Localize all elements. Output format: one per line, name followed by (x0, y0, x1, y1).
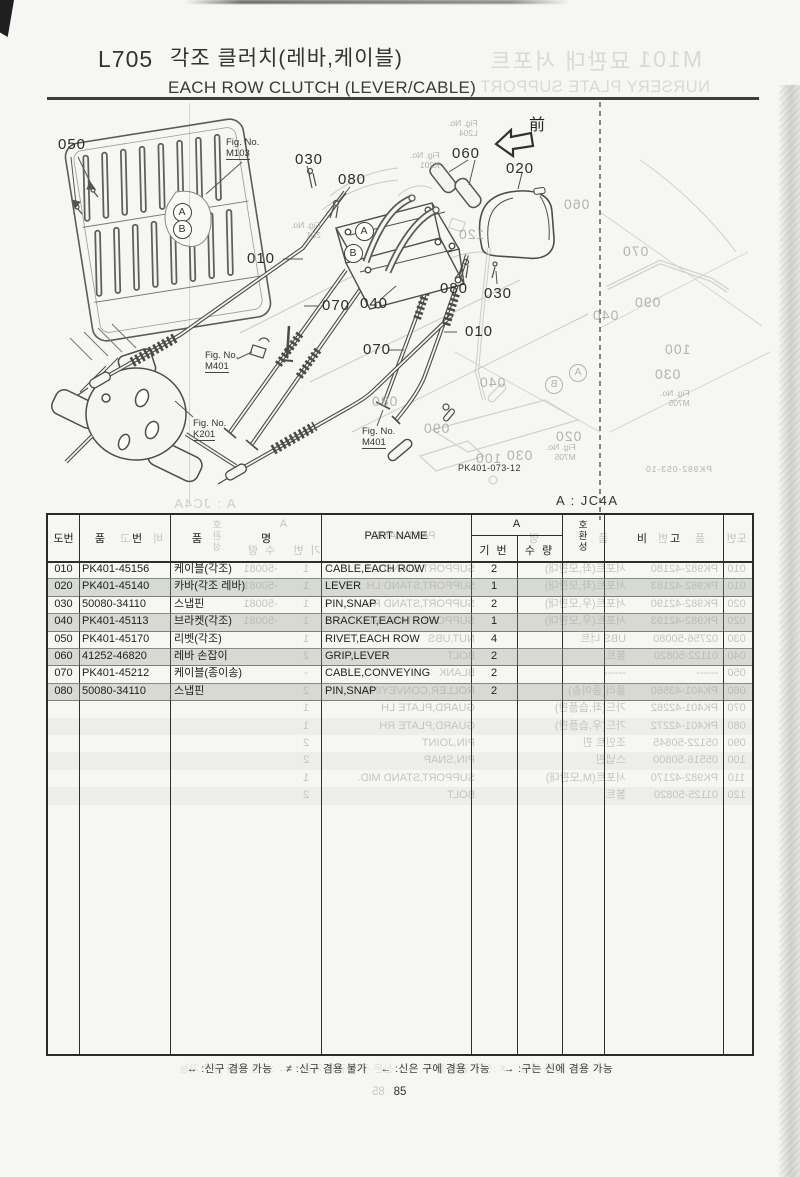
fold-line-right (599, 102, 601, 520)
col-header-qty: 수 량 (517, 542, 562, 558)
gearbox (49, 347, 236, 484)
bleedthrough-lines (420, 160, 770, 484)
col-header-fig-no: 도번 (48, 530, 79, 546)
catalog-page: M101 묘판대 서포트 NURSERY PLATE SUPPORT L705 … (0, 0, 800, 1177)
col-header-group-a: A (471, 518, 562, 530)
table-row: 03050080-34110스냅핀PIN,SNAP2 (48, 596, 752, 613)
compat-legend: ↔ :신구 겸용 가능 ≠ :신구 겸용 불가 ← :신은 구에 겸용 가능 →… (0, 1061, 800, 1076)
ghost-title-english: NURSERY PLATE SUPPORT (480, 78, 710, 97)
page-number: 85 (0, 1086, 800, 1098)
ghost-applicability-note: A : JC4A (173, 496, 236, 511)
col-header-part-name: PART NAME (321, 530, 471, 542)
table-row: 070PK401-45212케이블(종이송)CABLE,CONVEYING2 (48, 665, 752, 682)
small-pin (443, 404, 456, 422)
col-header-part-no: 품 번 (79, 530, 170, 546)
section-code: L705 (98, 46, 153, 73)
col-header-serial: 기 번 (471, 542, 517, 558)
diagram-line-art (0, 100, 800, 512)
table-row: 050PK401-45170리벳(각조)RIVET,EACH ROW4 (48, 631, 752, 648)
table-row: 010PK401-45156케이블(각조)CABLE,EACH ROW2 (48, 561, 752, 578)
table-row: 06041252-46820레바 손잡이GRIP,LEVER2 (48, 648, 752, 665)
table-row: 08050080-34110스냅핀PIN,SNAP2 (48, 683, 752, 700)
applicability-note: A : JC4A (556, 493, 619, 508)
clamp-part (250, 338, 269, 358)
table-row-line (48, 700, 752, 701)
fold-line-left (189, 103, 190, 503)
ghost-section-code: M101 (636, 46, 702, 73)
group-a-divider (471, 535, 562, 536)
page-title-english: EACH ROW CLUTCH (LEVER/CABLE) (168, 78, 476, 98)
front-arrow (496, 130, 533, 156)
col-header-compat: 호 환 성 (562, 520, 604, 553)
rivet-pin (386, 438, 413, 463)
col-header-name-kr: 품 명 (170, 530, 321, 546)
col-header-remarks: 비 고 (604, 530, 723, 546)
parts-diagram (0, 100, 800, 512)
ghost-title-korean: 묘판대 서포트 (488, 44, 630, 76)
page-title-korean: 각조 클러치(레바,케이블) (170, 42, 403, 72)
lever-cover (480, 187, 555, 258)
parts-table: 도번품 번품 명PART NAMEA기 번수 량호 환 성비 고010PK401… (46, 513, 754, 1056)
table-row: 040PK401-45113브라켓(각조)BRACKET,EACH ROW1 (48, 613, 752, 630)
table-row: 020PK401-45140카바(각조 레바)LEVER1 (48, 578, 752, 595)
